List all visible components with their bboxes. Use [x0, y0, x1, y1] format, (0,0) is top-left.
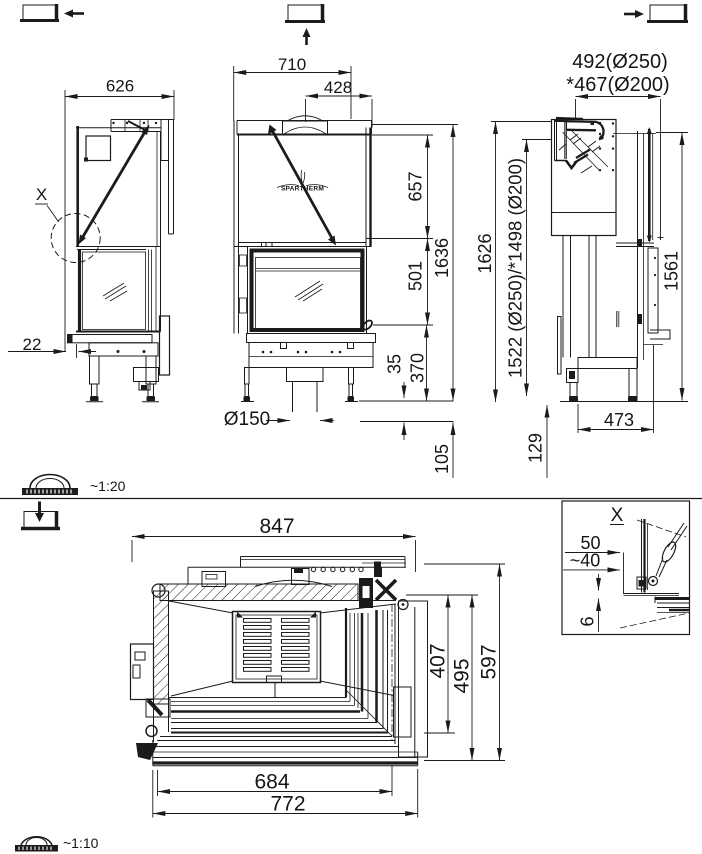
svg-text:Ø150: Ø150 — [224, 409, 270, 430]
svg-text:6: 6 — [578, 616, 598, 626]
svg-text:473: 473 — [604, 410, 634, 430]
svg-text:495: 495 — [451, 658, 474, 693]
svg-text:35: 35 — [385, 354, 405, 374]
svg-text:626: 626 — [106, 77, 134, 96]
svg-text:1522 (Ø250)/*1498 (Ø200): 1522 (Ø250)/*1498 (Ø200) — [505, 158, 526, 378]
svg-text:SPARTHERM: SPARTHERM — [281, 186, 324, 193]
svg-text:129: 129 — [526, 433, 546, 463]
svg-text:501: 501 — [406, 261, 426, 291]
svg-text:684: 684 — [254, 771, 289, 794]
svg-text:105: 105 — [432, 444, 452, 474]
svg-text:*467(Ø200): *467(Ø200) — [566, 74, 669, 96]
svg-text:772: 772 — [270, 793, 305, 816]
svg-text:~1:20: ~1:20 — [90, 478, 126, 494]
svg-text:847: 847 — [259, 515, 294, 538]
svg-text:X: X — [611, 505, 624, 526]
svg-text:X: X — [36, 185, 47, 204]
svg-text:1636: 1636 — [432, 238, 452, 278]
svg-text:1626: 1626 — [475, 233, 495, 273]
svg-text:407: 407 — [427, 643, 450, 678]
svg-text:710: 710 — [278, 55, 306, 74]
svg-text:370: 370 — [408, 353, 428, 383]
svg-text:~1:10: ~1:10 — [63, 835, 99, 851]
svg-text:1561: 1561 — [662, 251, 682, 291]
svg-text:597: 597 — [478, 644, 501, 679]
svg-text:428: 428 — [324, 78, 352, 97]
svg-text:657: 657 — [406, 171, 426, 201]
svg-text:~40: ~40 — [570, 551, 601, 571]
svg-text:492(Ø250): 492(Ø250) — [572, 51, 668, 73]
